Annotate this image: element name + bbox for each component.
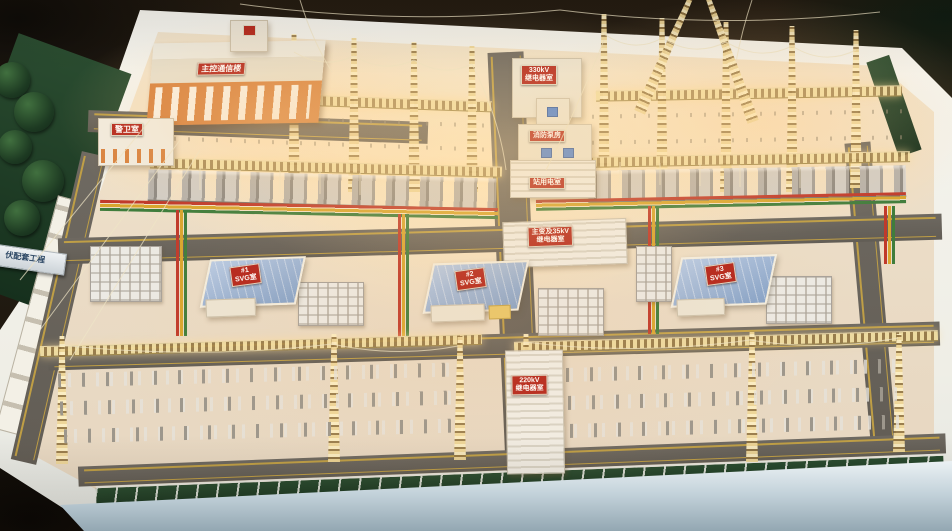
wires-overlay xyxy=(0,0,952,531)
substation-model-photo: 主控通信楼 警卫室 330kV 继电器室 消防泵房 站用电室 主变及35kV 继… xyxy=(0,0,952,531)
